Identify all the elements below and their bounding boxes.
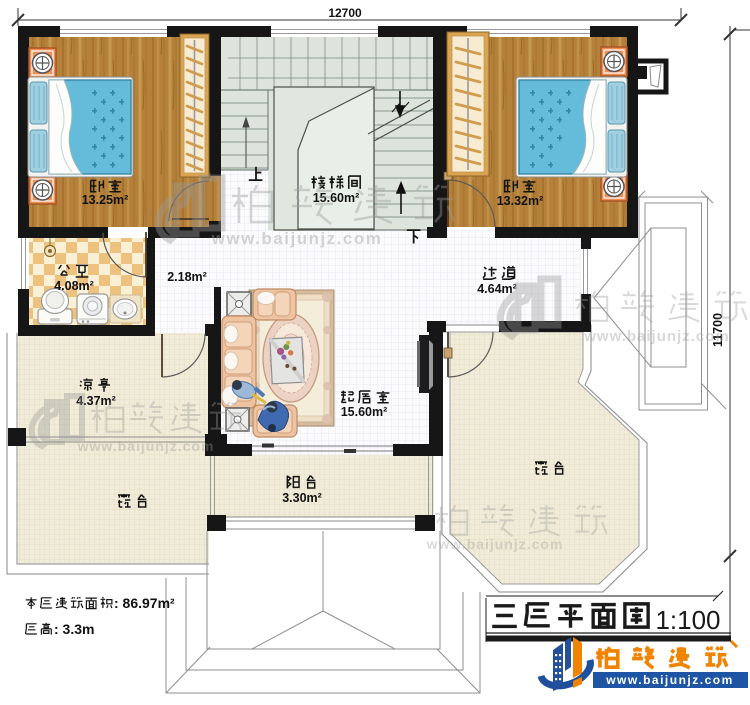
svg-text:: 86.97m²: : 86.97m² — [114, 595, 175, 611]
svg-text:www.baijunjz.com: www.baijunjz.com — [605, 673, 734, 687]
svg-text:www.baijunjz.com: www.baijunjz.com — [583, 328, 729, 345]
svg-text:12700: 12700 — [328, 6, 362, 20]
svg-text:1:100: 1:100 — [655, 605, 720, 635]
svg-text:4.08m²: 4.08m² — [54, 279, 94, 293]
svg-text:3.30m²: 3.30m² — [282, 491, 322, 505]
svg-text:www.baijunjz.com: www.baijunjz.com — [211, 229, 383, 248]
svg-text:www.baijunjz.com: www.baijunjz.com — [77, 438, 215, 454]
svg-text:13.25m²: 13.25m² — [82, 193, 129, 207]
svg-text:www.baijunjz.com: www.baijunjz.com — [426, 536, 564, 552]
svg-text:13.32m²: 13.32m² — [497, 194, 544, 208]
svg-text:15.60m²: 15.60m² — [341, 405, 388, 419]
svg-text:: 3.3m: : 3.3m — [54, 621, 94, 637]
svg-text:2.18m²: 2.18m² — [167, 270, 207, 284]
